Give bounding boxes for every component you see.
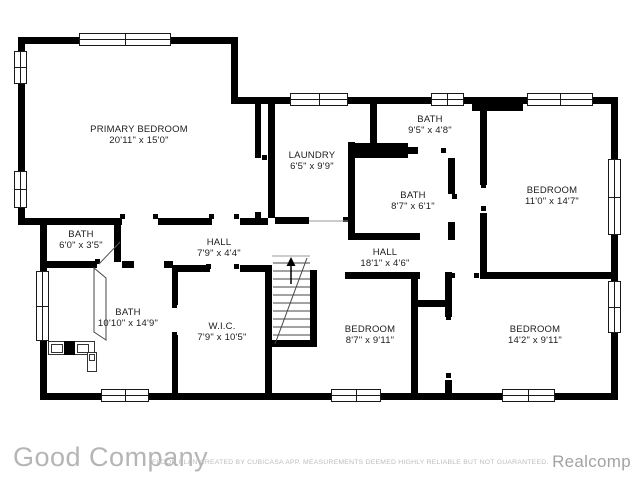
wall xyxy=(240,218,268,225)
room-dims: 7'9" x 10'5" xyxy=(197,332,246,343)
wall xyxy=(18,218,122,225)
door-tick xyxy=(172,332,177,337)
window xyxy=(36,271,49,341)
room-name: BATH xyxy=(408,114,452,125)
window xyxy=(502,389,555,402)
room-name: BATH xyxy=(98,307,158,318)
room-name: BEDROOM xyxy=(345,324,396,335)
room-label-bath-top: BATH 9'5" x 4'8" xyxy=(408,114,452,136)
room-name: W.I.C. xyxy=(197,321,246,332)
wall xyxy=(448,222,455,240)
wall xyxy=(231,37,238,104)
room-dims: 11'0" x 14'7" xyxy=(525,196,579,207)
room-label-primary-bedroom: PRIMARY BEDROOM 20'11" x 15'0" xyxy=(90,124,188,146)
floor-plan: PRIMARY BEDROOM 20'11" x 15'0" LAUNDRY 6… xyxy=(0,0,640,480)
room-name: BEDROOM xyxy=(525,185,579,196)
realcomp-logo: Realcomp xyxy=(552,452,631,472)
wall xyxy=(611,97,618,400)
room-name: PRIMARY BEDROOM xyxy=(90,124,188,135)
wall xyxy=(480,213,487,273)
door-tick xyxy=(304,217,309,222)
wall xyxy=(345,272,420,279)
wall xyxy=(448,158,455,194)
company-logo-text: Good Company xyxy=(13,442,208,473)
room-name: LAUNDRY xyxy=(289,150,336,161)
window xyxy=(608,281,621,333)
door-tick xyxy=(120,214,125,219)
wall xyxy=(255,104,261,158)
door-tick xyxy=(209,214,214,219)
room-label-hall-small: HALL 7'9" x 4'4" xyxy=(197,237,241,259)
wall xyxy=(255,212,261,225)
wall xyxy=(172,335,178,394)
window xyxy=(608,159,621,235)
toilet-tank xyxy=(89,354,95,361)
door-tick xyxy=(481,183,486,188)
room-dims: 8'7" x 6'1" xyxy=(391,201,435,212)
wall xyxy=(370,104,377,147)
wall xyxy=(445,272,452,317)
door-tick xyxy=(262,155,267,160)
window xyxy=(79,33,171,46)
door-tick xyxy=(234,214,239,219)
wall xyxy=(348,233,420,240)
wall xyxy=(158,218,212,225)
stairs-up-arrow xyxy=(287,257,296,284)
door-tick xyxy=(452,194,457,199)
door-tick xyxy=(172,303,177,308)
door-tick xyxy=(474,273,479,278)
wall xyxy=(172,265,178,305)
room-dims: 6'5" x 9'9" xyxy=(289,161,336,172)
wall xyxy=(411,272,418,394)
room-name: HALL xyxy=(197,237,241,248)
door-tick xyxy=(481,206,486,211)
room-label-laundry: LAUNDRY 6'5" x 9'9" xyxy=(289,150,336,172)
wall xyxy=(418,300,445,307)
stairs xyxy=(272,256,310,344)
wall xyxy=(114,224,121,262)
wall xyxy=(480,272,618,279)
window xyxy=(431,93,464,106)
room-label-bedroom-bottom-middle: BEDROOM 8'7" x 9'11" xyxy=(345,324,396,346)
wall xyxy=(310,270,317,347)
door-tick xyxy=(450,273,455,278)
room-name: HALL xyxy=(360,247,409,258)
room-label-bath-large: BATH 10'10" x 14'9" xyxy=(98,307,158,329)
room-name: BEDROOM xyxy=(508,324,562,335)
room-dims: 20'11" x 15'0" xyxy=(90,135,188,146)
room-dims: 10'10" x 14'9" xyxy=(98,318,158,329)
room-dims: 9'5" x 4'8" xyxy=(408,125,452,136)
room-dims: 6'0" x 3'5" xyxy=(59,240,103,251)
vanity-cabinet xyxy=(64,341,75,355)
window xyxy=(14,171,27,208)
room-name: BATH xyxy=(59,229,103,240)
door-tick xyxy=(95,259,100,264)
wall xyxy=(352,143,408,158)
wall xyxy=(348,142,355,240)
door-tick xyxy=(441,148,446,153)
room-label-wic: W.I.C. 7'9" x 10'5" xyxy=(197,321,246,343)
window xyxy=(527,93,593,106)
room-label-bedroom-bottom-right: BEDROOM 14'2" x 9'11" xyxy=(508,324,562,346)
wall xyxy=(265,265,272,394)
wall xyxy=(445,380,452,394)
wall xyxy=(122,261,134,268)
door-tick xyxy=(343,217,348,222)
door-tick xyxy=(446,373,451,378)
door-tick xyxy=(446,315,451,320)
door-tick xyxy=(234,264,239,269)
wall xyxy=(40,261,97,268)
room-label-bedroom-right: BEDROOM 11'0" x 14'7" xyxy=(525,185,579,207)
wall xyxy=(408,147,418,154)
room-label-bath-left: BATH 6'0" x 3'5" xyxy=(59,229,103,251)
room-dims: 14'2" x 9'11" xyxy=(508,335,562,346)
room-label-hall-long: HALL 18'1" x 4'6" xyxy=(360,247,409,269)
sink xyxy=(51,344,63,353)
wall xyxy=(268,104,275,218)
room-dims: 8'7" x 9'11" xyxy=(345,335,396,346)
wall xyxy=(272,340,317,347)
window xyxy=(331,389,381,402)
window xyxy=(101,389,149,402)
room-dims: 18'1" x 4'6" xyxy=(360,258,409,269)
window xyxy=(290,93,348,106)
window xyxy=(14,51,27,84)
room-name: BATH xyxy=(391,190,435,201)
room-label-bath-middle: BATH 8'7" x 6'1" xyxy=(391,190,435,212)
wall xyxy=(480,104,487,185)
door-tick xyxy=(206,264,211,269)
disclaimer-text: FLOOR PLAN CREATED BY CUBICASA APP. MEAS… xyxy=(152,459,549,466)
room-dims: 7'9" x 4'4" xyxy=(197,248,241,259)
door-tick xyxy=(153,214,158,219)
shower xyxy=(94,268,106,340)
